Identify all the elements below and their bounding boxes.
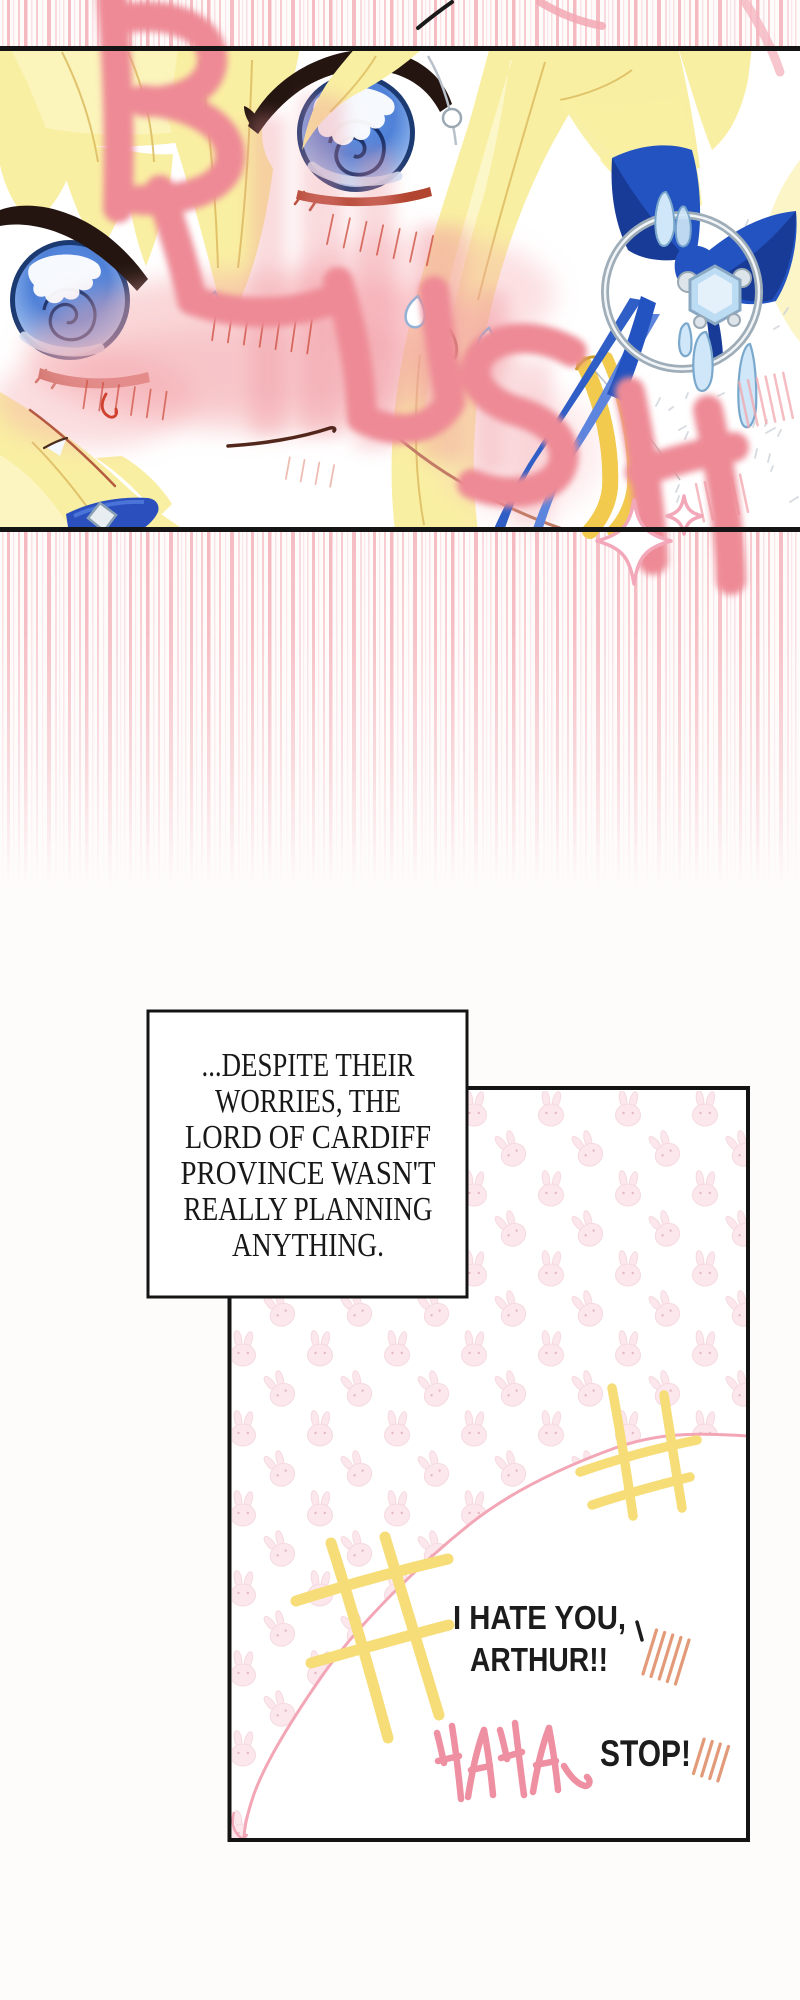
svg-text:REALLY PLANNING: REALLY PLANNING xyxy=(184,1191,433,1228)
svg-text:ANYTHING.: ANYTHING. xyxy=(232,1227,384,1264)
svg-text:STOP!: STOP! xyxy=(600,1733,691,1774)
svg-text:PROVINCE WASN'T: PROVINCE WASN'T xyxy=(181,1155,436,1192)
svg-text:ARTHUR!!: ARTHUR!! xyxy=(470,1641,608,1678)
svg-text:LORD OF CARDIFF: LORD OF CARDIFF xyxy=(185,1119,431,1156)
svg-text:WORRIES, THE: WORRIES, THE xyxy=(215,1083,401,1120)
svg-text:...DESPITE THEIR: ...DESPITE THEIR xyxy=(202,1047,415,1084)
svg-text:I HATE YOU,: I HATE YOU, xyxy=(453,1599,626,1636)
